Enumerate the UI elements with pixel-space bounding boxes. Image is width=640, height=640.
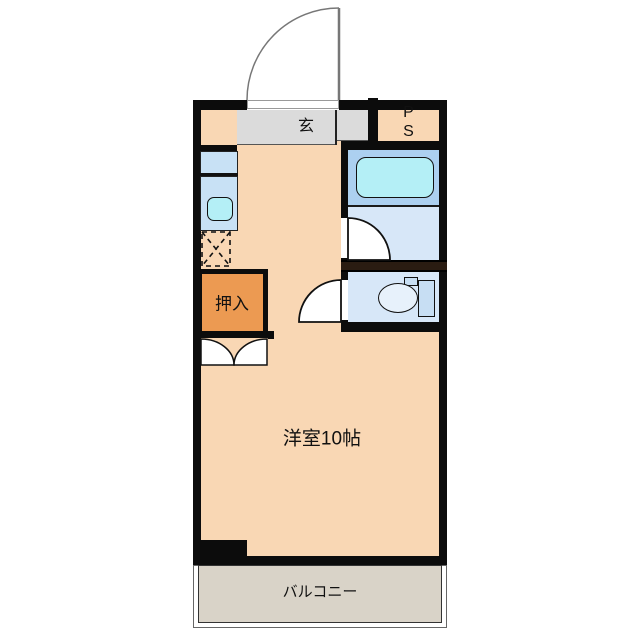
- ps-label-line1: P: [378, 103, 439, 122]
- closet-label: 押入: [215, 290, 249, 315]
- ps-label: P S: [378, 103, 439, 141]
- toilet-door-icon: [299, 280, 341, 322]
- door-swing-overlay: [0, 0, 640, 640]
- apartment-floorplan: 玄 P S 押入 洋室10帖 バルコニー: [0, 0, 640, 640]
- closet-double-door-left-icon: [201, 339, 234, 365]
- appliance-space-icon: [202, 232, 230, 266]
- bathroom-door-icon: [348, 218, 390, 260]
- main-room-label: 洋室10帖: [283, 424, 361, 451]
- genkan-label: 玄: [298, 112, 314, 136]
- closet-double-door-right-icon: [234, 339, 267, 365]
- balcony-label: バルコニー: [283, 581, 358, 602]
- entrance-door-arc-icon: [247, 8, 339, 100]
- ps-label-line2: S: [378, 122, 439, 141]
